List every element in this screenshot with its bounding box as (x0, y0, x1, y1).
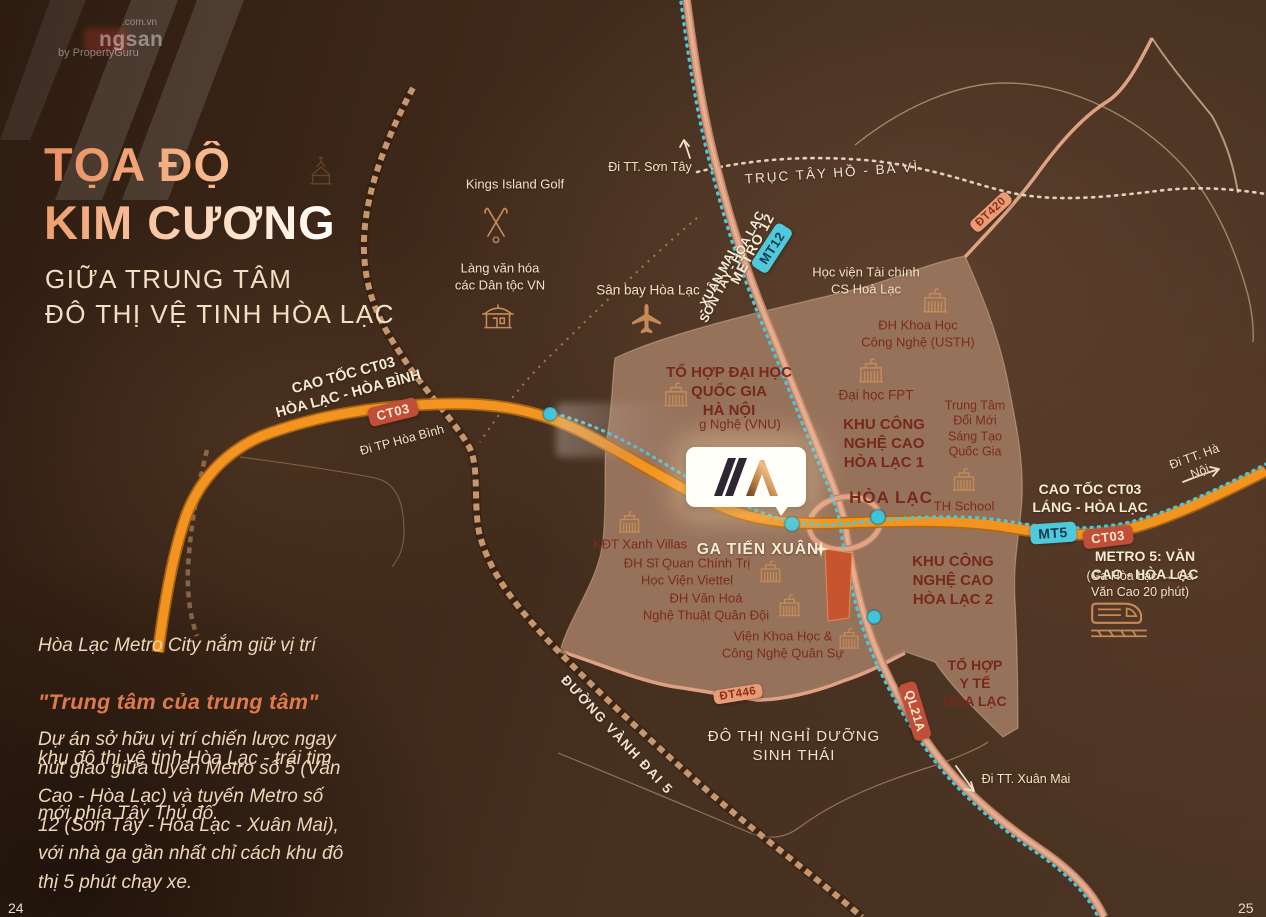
page-title-line2: KIM CƯƠNG (44, 199, 336, 246)
label-di-xuan-mai: Đi TT. Xuân Mai (982, 771, 1071, 787)
station-dot (543, 407, 557, 421)
page-subtitle-line2: ĐÔ THỊ VỆ TINH HÒA LẠC (45, 301, 395, 327)
label-dai-hoc-fpt: Đại học FPT (838, 386, 913, 403)
project-logo-card (686, 447, 806, 507)
brochure-page: .com.vn ngsan by PropertyGuru TỌA ĐỘ KIM… (0, 0, 1266, 917)
project-land-plot (825, 549, 852, 621)
label-di-son-tay: Đi TT. Sơn Tây (608, 159, 691, 175)
road-dt420 (965, 38, 1152, 257)
arrow-son-tay (680, 140, 690, 158)
label-ga-tien-xuan: GA TIẾN XUÂN (697, 540, 820, 560)
label-hoa-lac: HÒA LẠC (849, 487, 933, 509)
pagoda-icon (311, 158, 332, 184)
project-logo-icon (713, 456, 779, 498)
label-dh-van-hoa: ĐH Văn Hoá Nghệ Thuật Quân Đội (643, 590, 769, 623)
road-dt420-branch (1152, 38, 1238, 193)
watermark-domain: .com.vn (122, 17, 157, 28)
airplane-icon (632, 304, 661, 333)
label-th-school: TH School (934, 499, 995, 516)
station-dot (867, 610, 881, 624)
label-cao-toc-east: CAO TỐC CT03 LÁNG - HÒA LẠC (1032, 481, 1147, 517)
station-dot (785, 517, 800, 532)
label-kcn-hoa-lac-2: KHU CÔNG NGHỆ CAO HÒA LẠC 2 (912, 552, 994, 610)
label-vnu: TỔ HỢP ĐẠI HỌC QUỐC GIA HÀ NỘI (666, 363, 792, 421)
label-metro5-sub: (Ga Hòa Lạc → Ga Văn Cao 20 phút) (1077, 568, 1203, 600)
label-kings-island-golf: Kings Island Golf (466, 177, 564, 194)
intro-line1: Hòa Lạc Metro City nắm giữ vị trí (38, 635, 316, 656)
page-number-right: 25 (1238, 900, 1254, 916)
label-vnu-sub: g Nghệ (VNU) (699, 417, 781, 434)
station-dot (871, 510, 886, 525)
label-lang-van-hoa: Làng văn hóa các Dân tộc VN (455, 260, 545, 293)
badge-mt5: MT5 (1030, 521, 1077, 544)
label-do-thi-nghi-duong: ĐÔ THỊ NGHỈ DƯỠNG SINH THÁI (708, 727, 880, 765)
body-paragraph: Dự án sở hữu vị trí chiến lược ngay nút … (38, 726, 383, 897)
minor-line-west (240, 457, 404, 567)
intro-highlight: "Trung tâm của trung tâm" (38, 690, 319, 714)
label-kcn-hoa-lac-1: KHU CÔNG NGHỆ CAO HÒA LẠC 1 (843, 415, 925, 473)
page-title-line1: TỌA ĐỘ (44, 141, 231, 188)
village-icon (482, 305, 514, 328)
label-usth: ĐH Khoa Học Công Nghệ (USTH) (861, 317, 974, 350)
label-trung-tam-dmst: Trung Tâm Đổi Mới Sáng Tạo Quốc Gia (945, 399, 1005, 460)
label-kdt-xanh-villas: KĐT Xanh Villas (593, 537, 687, 554)
label-dh-si-quan: ĐH Sĩ Quan Chính Trị Học Viện Viettel (624, 555, 750, 588)
label-to-hop-y-te: TỔ HỢP Y TẾ HÒA LẠC (943, 657, 1006, 711)
label-vien-khqs: Viện Khoa Học & Công Nghệ Quân Sự (722, 628, 844, 661)
page-subtitle-line1: GIỮA TRUNG TÂM (45, 266, 292, 292)
golf-icon (485, 208, 507, 242)
train-icon (1091, 604, 1147, 637)
page-number-left: 24 (8, 900, 24, 916)
label-hoc-vien-tai-chinh: Học viện Tài chính CS Hoà Lạc (812, 264, 919, 297)
label-san-bay-hoa-lac: Sân bay Hòa Lạc (596, 281, 700, 298)
watermark-byline: by PropertyGuru (58, 47, 139, 59)
